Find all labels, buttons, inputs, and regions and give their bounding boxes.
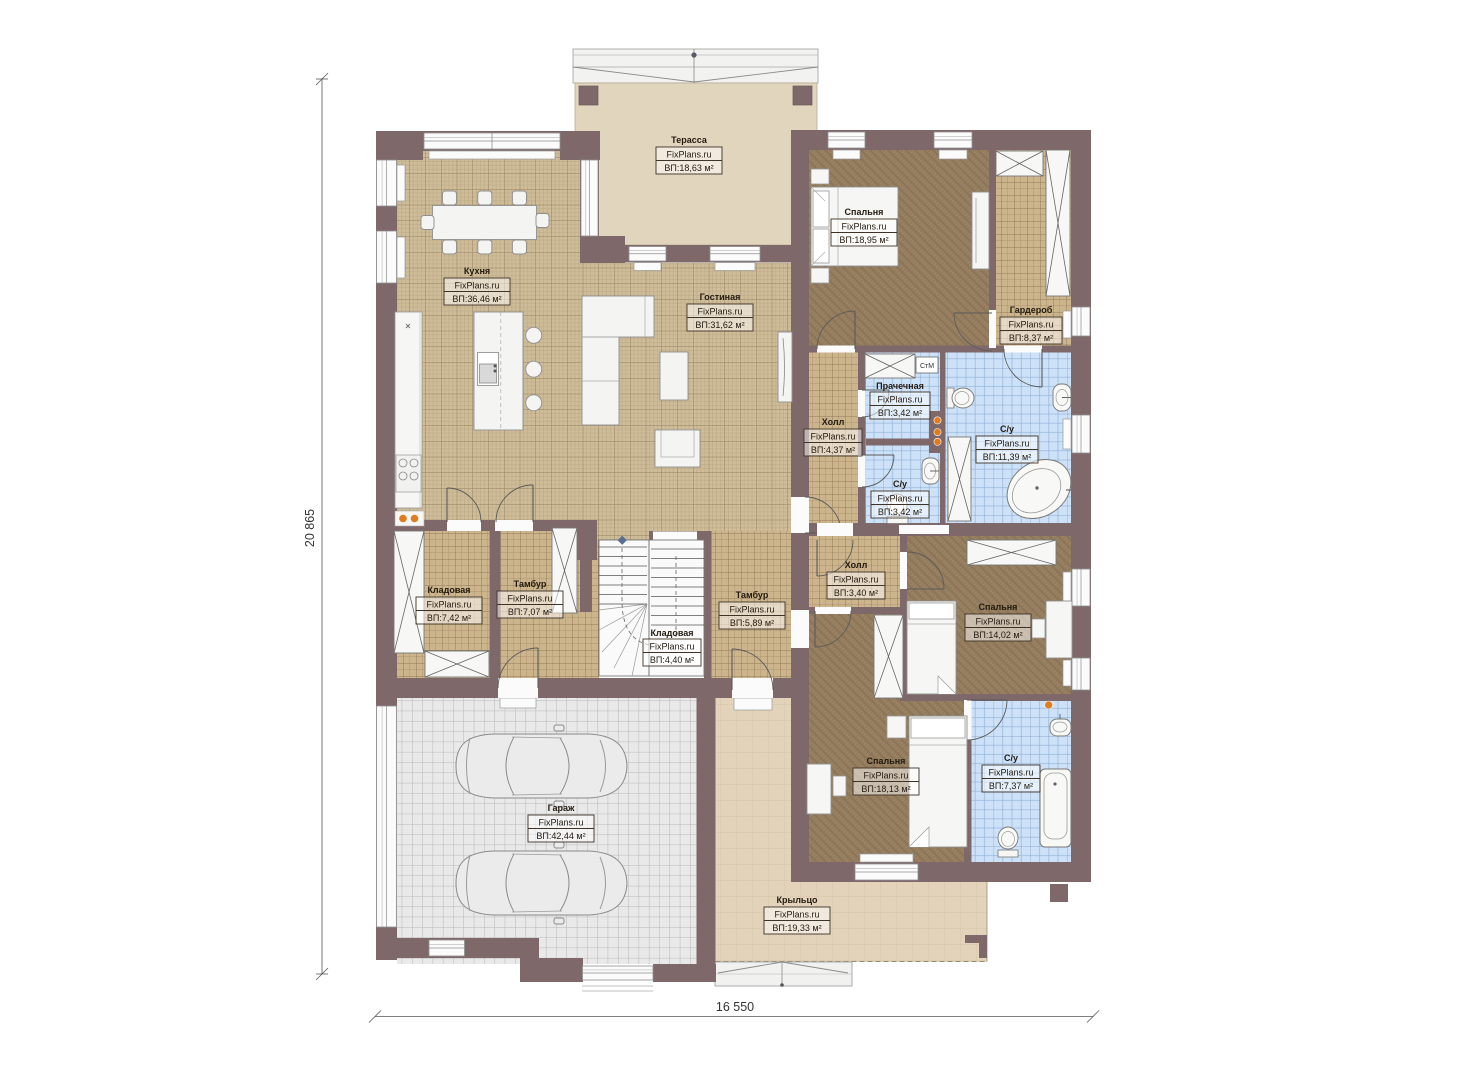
svg-text:Прачечная: Прачечная — [876, 381, 924, 391]
svg-text:Тамбур: Тамбур — [514, 579, 547, 589]
svg-text:Кухня: Кухня — [464, 266, 490, 276]
svg-text:✕: ✕ — [405, 322, 412, 331]
svg-text:20 865: 20 865 — [303, 509, 317, 547]
svg-text:ВП:42,44 м²: ВП:42,44 м² — [536, 831, 585, 841]
svg-text:ВП:19,33 м²: ВП:19,33 м² — [772, 923, 821, 933]
svg-text:16 550: 16 550 — [716, 1000, 754, 1014]
svg-text:Гостиная: Гостиная — [700, 292, 741, 302]
svg-text:FixPlans.ru: FixPlans.ru — [877, 494, 922, 504]
svg-text:FixPlans.ru: FixPlans.ru — [507, 594, 552, 604]
svg-text:ВП:36,46 м²: ВП:36,46 м² — [452, 294, 501, 304]
svg-text:ВП:7,42 м²: ВП:7,42 м² — [427, 613, 471, 623]
svg-text:ВП:18,13 м²: ВП:18,13 м² — [861, 784, 910, 794]
svg-text:Спальня: Спальня — [845, 207, 884, 217]
svg-text:Кладовая: Кладовая — [650, 628, 693, 638]
svg-text:Холл: Холл — [845, 560, 868, 570]
svg-text:FixPlans.ru: FixPlans.ru — [810, 432, 855, 442]
svg-text:ВП:14,02 м²: ВП:14,02 м² — [973, 630, 1022, 640]
svg-text:ВП:3,42 м²: ВП:3,42 м² — [878, 408, 922, 418]
svg-text:Гараж: Гараж — [548, 803, 575, 813]
svg-text:FixPlans.ru: FixPlans.ru — [984, 439, 1029, 449]
svg-text:FixPlans.ru: FixPlans.ru — [426, 600, 471, 610]
svg-text:FixPlans.ru: FixPlans.ru — [666, 150, 711, 160]
svg-text:Терасса: Терасса — [671, 135, 708, 145]
svg-text:FixPlans.ru: FixPlans.ru — [697, 307, 742, 317]
svg-text:FixPlans.ru: FixPlans.ru — [988, 768, 1033, 778]
svg-text:FixPlans.ru: FixPlans.ru — [774, 910, 819, 920]
svg-text:ВП:8,37 м²: ВП:8,37 м² — [1009, 333, 1053, 343]
svg-text:Крыльцо: Крыльцо — [777, 895, 818, 905]
svg-text:Спальня: Спальня — [867, 756, 906, 766]
svg-text:ВП:11,39 м²: ВП:11,39 м² — [983, 452, 1032, 462]
svg-text:ВП:18,95 м²: ВП:18,95 м² — [839, 235, 888, 245]
svg-text:ВП:5,89 м²: ВП:5,89 м² — [730, 618, 774, 628]
svg-text:Тамбур: Тамбур — [736, 590, 769, 600]
svg-text:С/у: С/у — [1000, 424, 1014, 434]
svg-text:ВП:7,37 м²: ВП:7,37 м² — [989, 781, 1033, 791]
svg-text:Спальня: Спальня — [979, 602, 1018, 612]
svg-text:ВП:3,42 м²: ВП:3,42 м² — [878, 507, 922, 517]
svg-text:FixPlans.ru: FixPlans.ru — [729, 605, 774, 615]
svg-text:FixPlans.ru: FixPlans.ru — [1008, 320, 1053, 330]
svg-text:FixPlans.ru: FixPlans.ru — [833, 575, 878, 585]
svg-text:С/у: С/у — [1004, 753, 1018, 763]
svg-text:ВП:18,63 м²: ВП:18,63 м² — [664, 163, 713, 173]
svg-text:FixPlans.ru: FixPlans.ru — [863, 771, 908, 781]
svg-text:Холл: Холл — [822, 417, 845, 427]
svg-text:Гардероб: Гардероб — [1010, 305, 1053, 315]
svg-text:Кладовая: Кладовая — [427, 585, 470, 595]
svg-text:FixPlans.ru: FixPlans.ru — [975, 617, 1020, 627]
svg-text:FixPlans.ru: FixPlans.ru — [877, 395, 922, 405]
svg-text:ВП:3,40 м²: ВП:3,40 м² — [834, 588, 878, 598]
svg-text:ВП:4,40 м²: ВП:4,40 м² — [650, 655, 694, 665]
svg-text:СтМ: СтМ — [920, 363, 934, 370]
svg-text:FixPlans.ru: FixPlans.ru — [649, 642, 694, 652]
svg-text:С/у: С/у — [893, 479, 907, 489]
svg-text:FixPlans.ru: FixPlans.ru — [538, 818, 583, 828]
svg-text:FixPlans.ru: FixPlans.ru — [454, 281, 499, 291]
svg-text:ВП:7,07 м²: ВП:7,07 м² — [508, 607, 552, 617]
svg-text:ВП:31,62 м²: ВП:31,62 м² — [695, 320, 744, 330]
svg-text:ВП:4,37 м²: ВП:4,37 м² — [811, 445, 855, 455]
svg-text:FixPlans.ru: FixPlans.ru — [841, 222, 886, 232]
